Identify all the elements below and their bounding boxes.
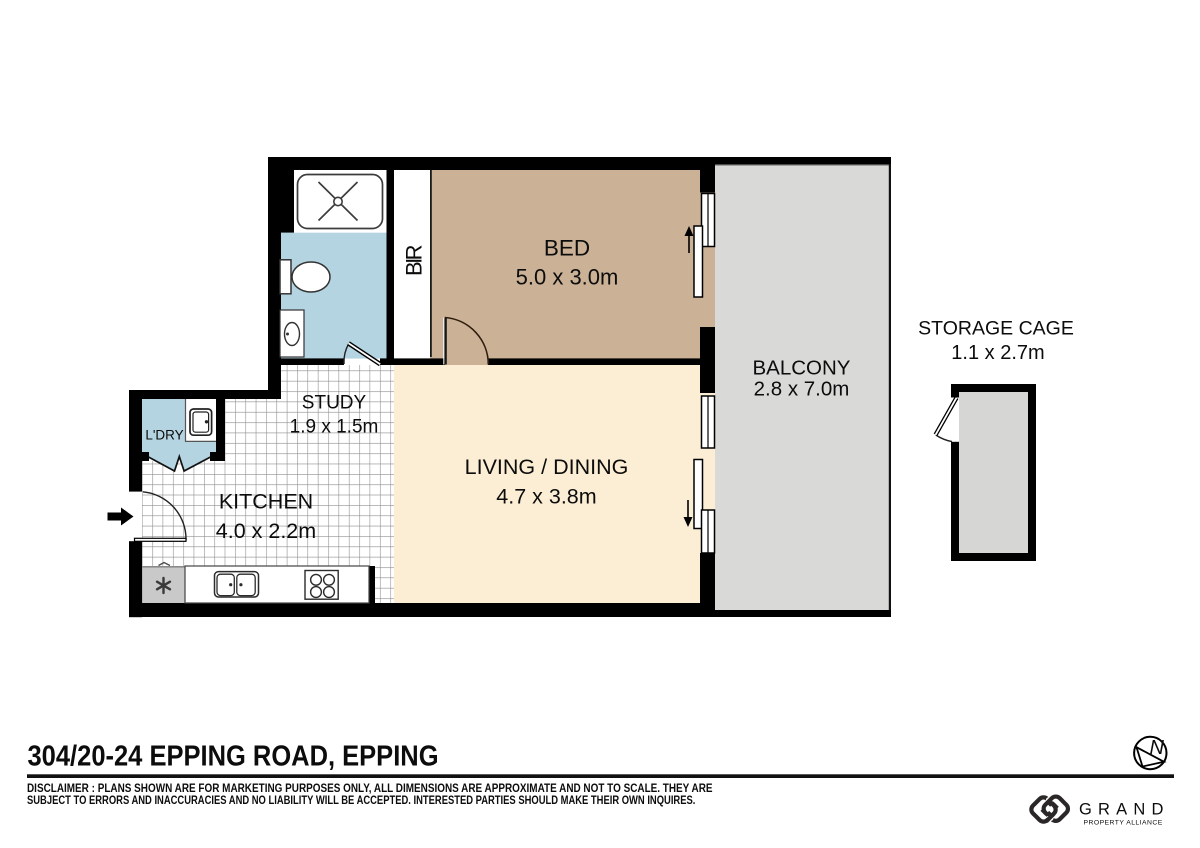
svg-text:304/20-24 EPPING ROAD, EPPING: 304/20-24 EPPING ROAD, EPPING — [28, 739, 439, 772]
svg-text:LIVING / DINING: LIVING / DINING — [465, 455, 629, 479]
svg-text:KITCHEN: KITCHEN — [219, 490, 313, 514]
svg-text:2.8 x 7.0m: 2.8 x 7.0m — [754, 378, 850, 401]
svg-text:1.1 x 2.7m: 1.1 x 2.7m — [951, 342, 1044, 364]
svg-text:STUDY: STUDY — [302, 393, 367, 414]
svg-text:SUBJECT TO ERRORS AND INACCURA: SUBJECT TO ERRORS AND INACCURACIES AND N… — [27, 794, 695, 807]
svg-text:1.9 x 1.5m: 1.9 x 1.5m — [290, 417, 379, 438]
svg-text:4.0 x 2.2m: 4.0 x 2.2m — [216, 519, 316, 543]
svg-text:4.7 x 3.8m: 4.7 x 3.8m — [496, 485, 596, 509]
svg-text:PROPERTY ALLIANCE: PROPERTY ALLIANCE — [1084, 819, 1163, 826]
svg-text:BED: BED — [544, 235, 590, 260]
svg-text:5.0 x 3.0m: 5.0 x 3.0m — [516, 264, 619, 289]
svg-text:STORAGE CAGE: STORAGE CAGE — [918, 317, 1074, 339]
svg-text:GRAND: GRAND — [1079, 801, 1170, 819]
svg-text:BIR: BIR — [402, 245, 427, 277]
svg-text:BALCONY: BALCONY — [753, 357, 851, 380]
svg-text:N: N — [1150, 737, 1165, 759]
svg-text:L'DRY: L'DRY — [145, 427, 183, 442]
